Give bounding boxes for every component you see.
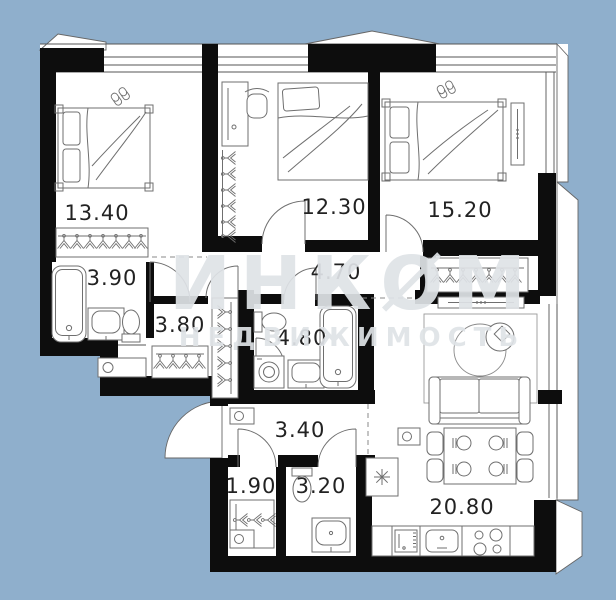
coffee-table-icon	[486, 323, 514, 351]
room-area-label: 3.20	[296, 474, 347, 498]
desk-icon	[222, 82, 248, 146]
room-area-label: 4.80	[277, 326, 328, 350]
room-area-label: 15.20	[427, 198, 492, 222]
vent-shaft-icon	[98, 358, 146, 377]
vent-shaft3-icon	[398, 428, 420, 445]
sink-icon	[88, 308, 124, 340]
sink2-icon	[288, 360, 324, 388]
radiator2-icon	[438, 297, 524, 308]
double-bed-icon	[55, 105, 153, 191]
single-bed-icon	[278, 83, 368, 180]
room-area-label: 12.30	[301, 195, 366, 219]
washing-machine-icon	[254, 356, 284, 388]
wardrobe-rail-icon	[56, 228, 148, 257]
bathtub-icon	[52, 266, 86, 342]
kitchen-sink-icon	[426, 530, 458, 552]
vent-shaft2-icon	[230, 408, 254, 424]
hanger-row-icon	[152, 346, 208, 378]
toilet-icon	[122, 310, 140, 342]
room-area-label: 13.40	[64, 201, 129, 225]
room-area-label: 3.80	[155, 313, 206, 337]
hanger-row2-icon	[230, 500, 276, 548]
hanger-rail-vertical-icon	[212, 298, 238, 398]
floorplan-drawing: 13.40 12.30 15.20 3.90 4.70 3.80 4.80 3.…	[0, 0, 616, 600]
room-area-label: 1.90	[226, 474, 277, 498]
floorplan-canvas: 13.40 12.30 15.20 3.90 4.70 3.80 4.80 3.…	[0, 0, 616, 600]
facade-right-upper	[557, 44, 568, 182]
room-area-label: 20.80	[429, 495, 494, 519]
sink3-icon	[312, 518, 350, 552]
closet-rail2-icon	[427, 258, 528, 292]
room-area-label: 3.40	[275, 418, 326, 442]
room-area-label: 4.70	[311, 260, 362, 284]
room-area-label: 3.90	[87, 266, 138, 290]
sofa-icon	[429, 377, 530, 424]
dishwasher-icon	[395, 530, 417, 552]
fridge-marker-icon	[366, 458, 398, 496]
radiator-icon	[511, 103, 524, 165]
double-bed2-icon	[382, 99, 506, 181]
facade-right-mid	[557, 182, 578, 500]
